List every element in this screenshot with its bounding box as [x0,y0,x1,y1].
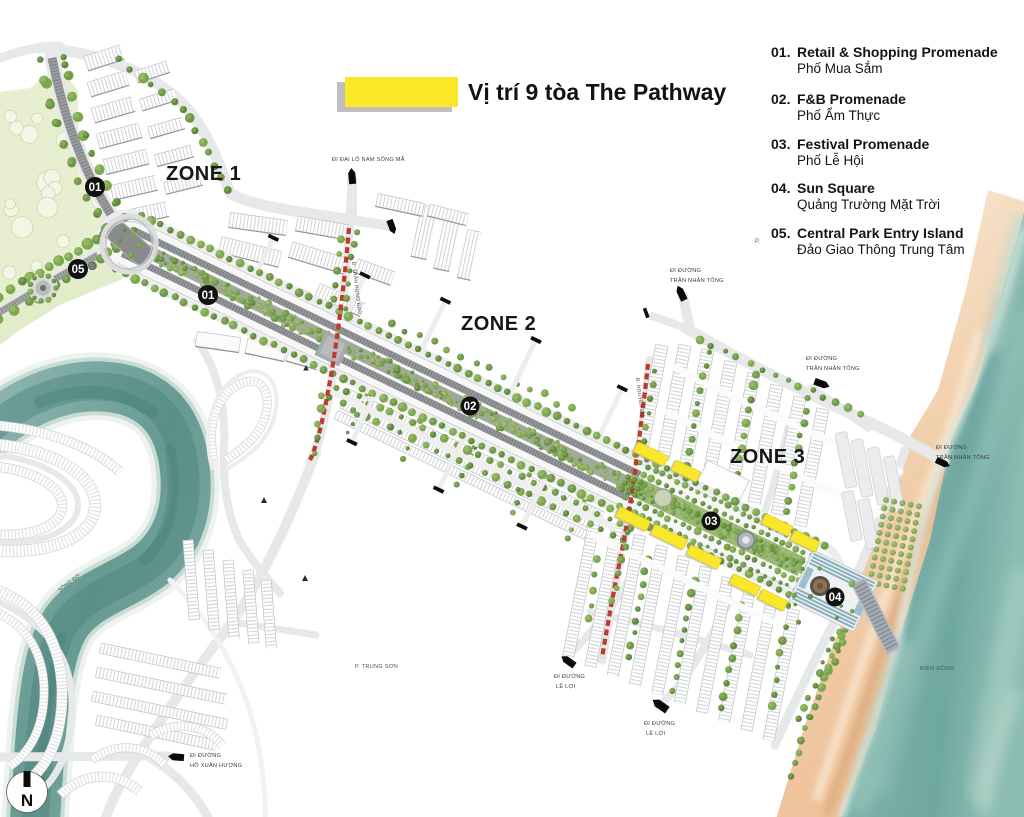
svg-text:ĐI ĐẠI LỘ NAM SÔNG MÃ: ĐI ĐẠI LỘ NAM SÔNG MÃ [332,156,405,163]
svg-text:Vị trí 9 tòa The Pathway: Vị trí 9 tòa The Pathway [468,79,726,105]
svg-text:Sun Square: Sun Square [797,180,875,196]
svg-text:TRẦN NHÂN TÔNG: TRẦN NHÂN TÔNG [936,454,990,461]
svg-text:P.: P. [755,239,760,245]
svg-text:Phố Lễ Hội: Phố Lễ Hội [797,153,864,168]
svg-text:01: 01 [89,182,102,194]
svg-text:ĐI ĐƯỜNG: ĐI ĐƯỜNG [644,720,675,727]
svg-text:ZONE 2: ZONE 2 [461,313,536,335]
svg-text:TRẦN NHÂN TÔNG: TRẦN NHÂN TÔNG [806,365,860,372]
svg-text:03.: 03. [771,136,790,152]
svg-text:Phố Mua Sắm: Phố Mua Sắm [797,61,883,76]
svg-text:HỒ XUÂN HƯƠNG: HỒ XUÂN HƯƠNG [190,762,242,769]
svg-text:ĐI ĐƯỜNG: ĐI ĐƯỜNG [936,444,967,451]
svg-text:BIỂN ĐÔNG: BIỂN ĐÔNG [920,665,955,672]
svg-text:F&B Promenade: F&B Promenade [797,91,906,107]
svg-text:ZONE 1: ZONE 1 [166,163,241,185]
svg-text:02.: 02. [771,91,790,107]
svg-text:03: 03 [705,516,718,528]
svg-text:ĐI ĐƯỜNG: ĐI ĐƯỜNG [554,673,585,680]
svg-text:04.: 04. [771,180,790,196]
svg-text:Retail & Shopping Promenade: Retail & Shopping Promenade [797,44,998,60]
svg-text:ĐI ĐƯỜNG: ĐI ĐƯỜNG [190,752,221,759]
svg-text:05: 05 [72,264,85,276]
svg-text:ZONE 3: ZONE 3 [730,446,805,468]
svg-text:LÊ LỢI: LÊ LỢI [556,682,576,690]
svg-text:02: 02 [464,401,477,413]
svg-text:Central Park Entry Island: Central Park Entry Island [797,225,964,241]
svg-text:01: 01 [202,290,215,302]
svg-text:P. TRUNG SƠN: P. TRUNG SƠN [355,664,398,670]
svg-text:04: 04 [829,592,842,604]
svg-text:ĐI ĐƯỜNG: ĐI ĐƯỜNG [806,355,837,362]
svg-text:01.: 01. [771,44,790,60]
svg-text:05.: 05. [771,225,790,241]
svg-text:ĐI ĐƯỜNG: ĐI ĐƯỜNG [670,267,701,274]
svg-text:Phố Ẩm Thực: Phố Ẩm Thực [797,108,880,123]
svg-text:Festival Promenade: Festival Promenade [797,136,929,152]
svg-text:Quảng Trường Mặt Trời: Quảng Trường Mặt Trời [797,197,940,212]
svg-text:Đảo Giao Thông Trung Tâm: Đảo Giao Thông Trung Tâm [797,242,965,257]
svg-text:N: N [21,791,33,810]
svg-text:LÊ LỢI: LÊ LỢI [646,729,666,737]
svg-text:TRẦN NHÂN TÔNG: TRẦN NHÂN TÔNG [670,277,724,284]
